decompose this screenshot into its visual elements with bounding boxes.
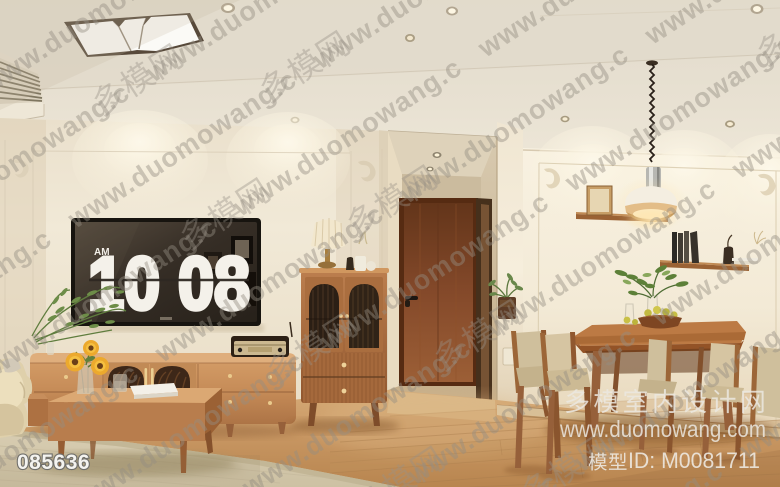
svg-text:085636: 085636: [17, 451, 90, 474]
svg-text:ID: M0081711: ID: M0081711: [628, 448, 760, 473]
svg-text:www.duomowang.com: www.duomowang.com: [559, 416, 766, 442]
